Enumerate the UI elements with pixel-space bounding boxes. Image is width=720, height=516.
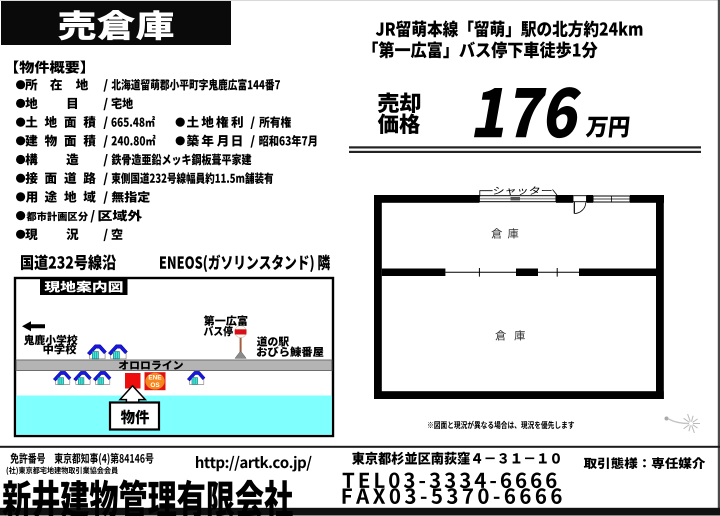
svg-text:OS: OS [150,382,160,389]
svg-text:ENE: ENE [148,375,162,382]
